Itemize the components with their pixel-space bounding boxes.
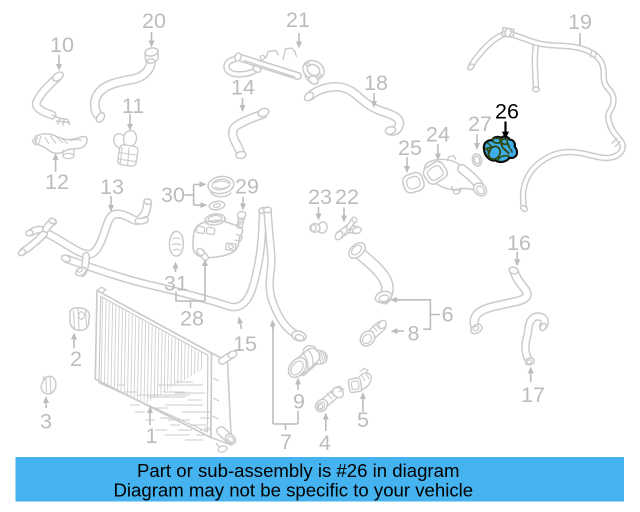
svg-text:3: 3 bbox=[40, 410, 52, 434]
svg-text:13: 13 bbox=[100, 175, 124, 199]
svg-text:25: 25 bbox=[398, 136, 422, 160]
svg-text:18: 18 bbox=[364, 71, 388, 95]
svg-text:11: 11 bbox=[122, 94, 144, 118]
svg-text:17: 17 bbox=[521, 383, 545, 407]
svg-text:7: 7 bbox=[280, 430, 292, 454]
svg-text:9: 9 bbox=[293, 390, 305, 414]
svg-text:Part or sub-assembly is #26 in: Part or sub-assembly is #26 in diagram bbox=[137, 460, 459, 481]
svg-text:23: 23 bbox=[308, 185, 332, 209]
svg-text:24: 24 bbox=[426, 123, 450, 147]
svg-text:6: 6 bbox=[442, 303, 454, 327]
svg-text:14: 14 bbox=[231, 76, 255, 100]
svg-text:28: 28 bbox=[180, 307, 204, 331]
svg-text:15: 15 bbox=[233, 332, 257, 356]
svg-text:12: 12 bbox=[45, 170, 69, 194]
svg-text:Diagram may not be specific to: Diagram may not be specific to your vehi… bbox=[114, 480, 474, 501]
svg-text:5: 5 bbox=[357, 408, 369, 432]
svg-text:22: 22 bbox=[335, 185, 359, 209]
svg-text:16: 16 bbox=[507, 231, 531, 255]
svg-text:10: 10 bbox=[50, 33, 74, 57]
svg-text:8: 8 bbox=[408, 322, 420, 346]
svg-text:27: 27 bbox=[468, 112, 492, 136]
svg-text:29: 29 bbox=[235, 175, 259, 199]
svg-text:31: 31 bbox=[164, 272, 188, 296]
svg-text:4: 4 bbox=[319, 431, 331, 455]
svg-text:30: 30 bbox=[161, 183, 185, 207]
svg-text:19: 19 bbox=[568, 10, 592, 34]
svg-text:20: 20 bbox=[142, 9, 166, 33]
svg-text:21: 21 bbox=[286, 8, 310, 32]
svg-text:26: 26 bbox=[495, 100, 519, 124]
svg-text:1: 1 bbox=[146, 424, 158, 448]
svg-text:2: 2 bbox=[70, 347, 82, 371]
